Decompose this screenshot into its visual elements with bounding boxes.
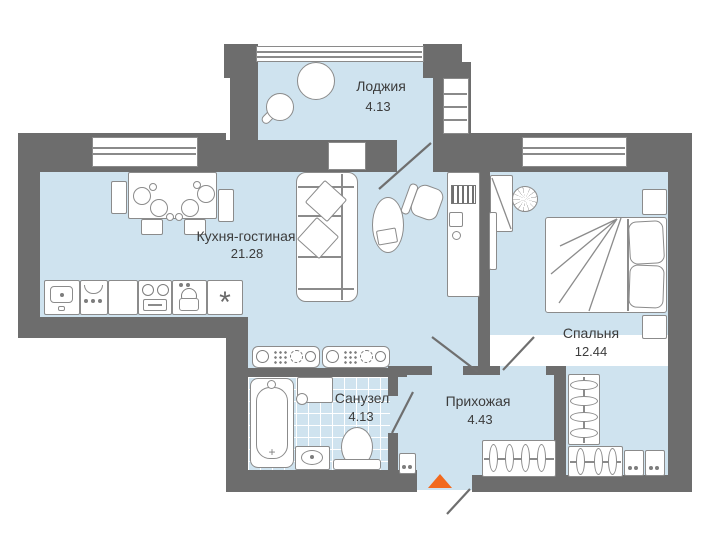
wall-mid-vertical xyxy=(226,317,248,492)
desk-pad xyxy=(449,212,463,227)
plate xyxy=(150,199,168,217)
bedroom-window xyxy=(522,137,627,167)
window-glazing-line xyxy=(523,147,625,149)
bathtub-faucet xyxy=(267,380,276,389)
burner xyxy=(157,284,169,296)
shoe-bench xyxy=(399,453,416,474)
entrance-marker-icon xyxy=(428,474,452,488)
mug xyxy=(452,231,461,240)
room-area-kitchen-living: 21.28 xyxy=(207,246,287,261)
sofa-backrest-line xyxy=(341,174,343,300)
wall-south-east xyxy=(472,475,692,492)
cup xyxy=(149,183,157,191)
appliance-drum xyxy=(305,351,316,362)
wall-loggia-west xyxy=(230,62,258,142)
wall-bathroom-north xyxy=(248,368,407,377)
toilet-tank xyxy=(333,459,381,470)
bathroom-faucet-knob xyxy=(296,393,308,405)
shoe-dot xyxy=(402,465,406,469)
hanger-icon xyxy=(570,428,598,438)
plate xyxy=(181,199,199,217)
appliance-drum xyxy=(375,351,386,362)
fridge: * xyxy=(207,280,243,315)
bathtub-drain: + xyxy=(266,446,278,458)
hanger-icon xyxy=(570,412,598,422)
shoe-cabinet xyxy=(624,450,644,476)
washbasin-drain xyxy=(310,455,314,459)
wall-divider-foot xyxy=(463,366,500,375)
plant xyxy=(512,186,538,212)
dishwasher-knob xyxy=(186,283,190,287)
bed-pillow xyxy=(628,220,665,265)
window-glazing-line xyxy=(93,147,196,149)
appliance-fan xyxy=(360,350,373,363)
sink-faucet xyxy=(58,306,65,311)
wall-kitchen-south xyxy=(18,317,226,338)
window-glazing-line xyxy=(523,153,625,155)
wall-bathroom-east-lower xyxy=(388,433,398,470)
cup xyxy=(193,181,201,189)
counter-worktop xyxy=(108,280,138,315)
shoe-dot xyxy=(408,465,412,469)
dining-chair xyxy=(111,181,127,214)
room-area-bathroom: 4.13 xyxy=(321,409,401,424)
hanger-icon xyxy=(505,444,514,472)
laptop xyxy=(451,185,476,204)
sink-drain xyxy=(60,293,64,297)
hanger-icon xyxy=(576,448,585,475)
room-name-loggia: Лоджия xyxy=(331,78,431,94)
sofa-armrest-line xyxy=(298,288,354,290)
window-glazing-line xyxy=(257,51,422,53)
shoe-dot xyxy=(628,466,632,470)
room-name-kitchen-living: Кухня-гостиная xyxy=(166,228,326,244)
kitchen-window xyxy=(92,137,198,167)
appliance-drum xyxy=(256,350,269,363)
dishwasher-knob xyxy=(179,283,183,287)
room-area-hallway: 4.43 xyxy=(440,412,520,427)
hanger-icon xyxy=(608,448,617,475)
wall-east xyxy=(668,133,692,492)
window-glazing-line xyxy=(444,93,467,95)
shoe-dot xyxy=(655,466,659,470)
loggia-side-window xyxy=(443,78,469,134)
hanger-icon xyxy=(537,444,546,472)
cup xyxy=(175,213,183,221)
appliance-dots xyxy=(343,350,357,364)
cup xyxy=(166,213,174,221)
window-glazing-line xyxy=(257,56,422,58)
room-name-bedroom: Спальня xyxy=(541,325,641,341)
room-name-hallway: Прихожая xyxy=(418,393,538,409)
coffee-table xyxy=(372,197,404,253)
hanger-icon xyxy=(594,448,603,475)
appliance-dots xyxy=(273,350,287,364)
nightstand xyxy=(642,189,667,215)
window-glazing-line xyxy=(444,106,467,108)
loggia-chair xyxy=(266,93,294,121)
floor-plan: * + xyxy=(0,0,720,546)
hanger-icon xyxy=(521,444,530,472)
wall-niche xyxy=(328,142,366,170)
dining-chair xyxy=(141,219,163,235)
lock-body-icon xyxy=(179,298,199,311)
plate xyxy=(133,187,151,205)
oven-handle xyxy=(148,304,162,306)
wall-bathroom-south xyxy=(226,470,417,492)
window-glazing-line xyxy=(444,119,467,121)
room-area-bedroom: 12.44 xyxy=(551,344,631,359)
hanger-icon xyxy=(489,444,498,472)
room-area-loggia: 4.13 xyxy=(338,99,418,114)
tv xyxy=(489,212,497,270)
appliance-fan xyxy=(290,350,303,363)
window-glazing-line xyxy=(93,153,196,155)
knob xyxy=(91,299,95,303)
shoe-cabinet xyxy=(645,450,665,476)
wall-hall-north-west xyxy=(388,366,432,375)
wall-west xyxy=(18,133,40,338)
room-name-bathroom: Санузел xyxy=(312,390,412,406)
hanger-icon xyxy=(570,396,598,406)
burner xyxy=(142,284,154,296)
dining-chair xyxy=(218,189,234,222)
balcony-door-opening xyxy=(397,140,433,172)
hanger-icon xyxy=(570,380,598,390)
nightstand xyxy=(642,315,667,339)
shoe-dot xyxy=(649,466,653,470)
knob xyxy=(98,299,102,303)
appliance-drum xyxy=(326,350,339,363)
loggia-glazing xyxy=(256,46,424,62)
loggia-table xyxy=(297,62,335,100)
knob xyxy=(84,299,88,303)
shoe-dot xyxy=(634,466,638,470)
bed-pillow xyxy=(628,264,664,308)
